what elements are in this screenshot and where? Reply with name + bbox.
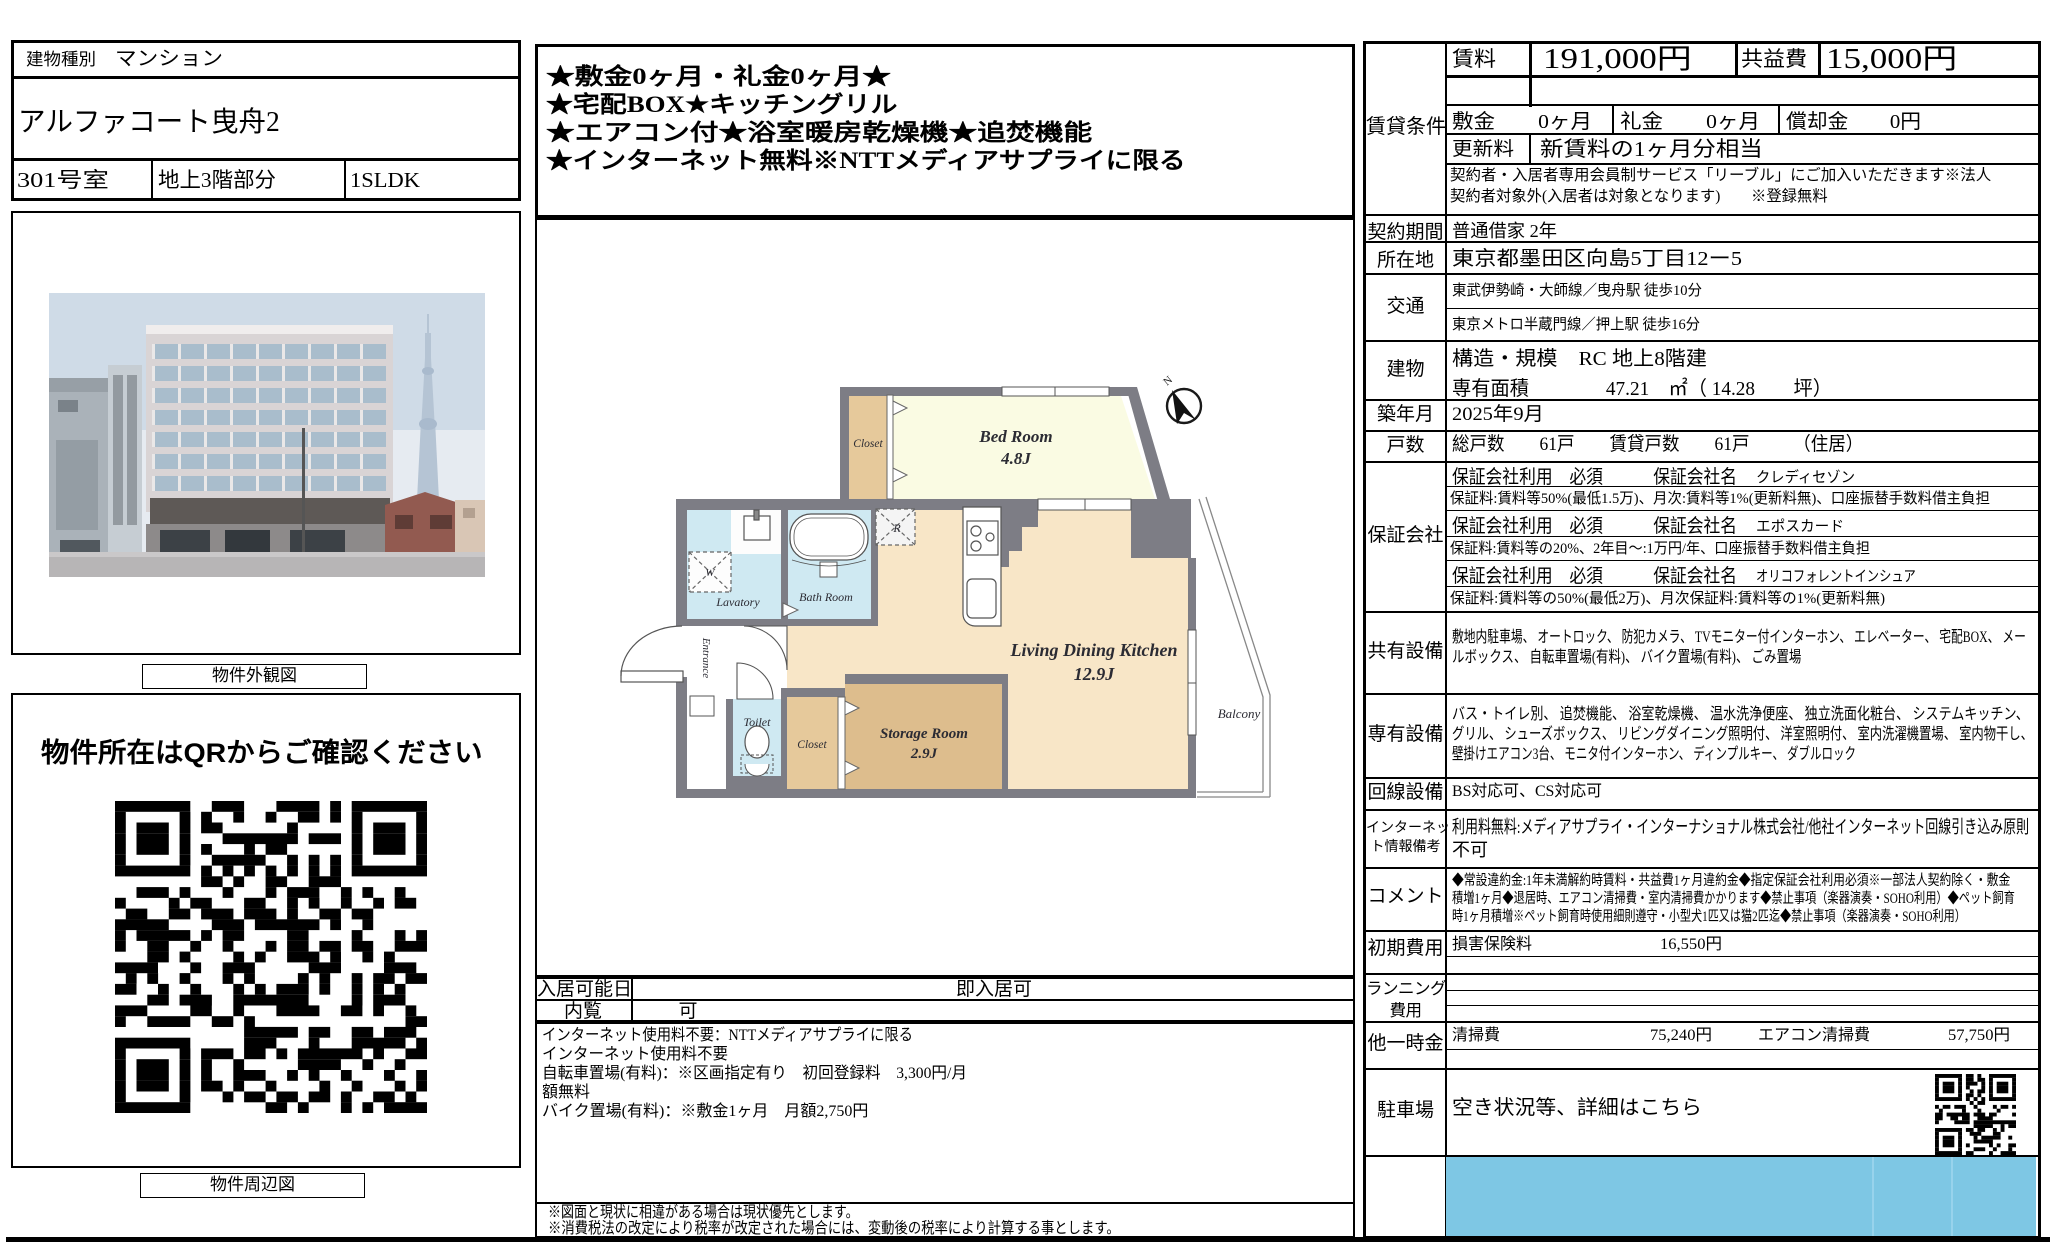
svg-text:W: W bbox=[705, 567, 715, 579]
svg-text:2.9J: 2.9J bbox=[910, 746, 938, 762]
svg-text:Closet: Closet bbox=[853, 438, 883, 450]
svg-text:Entrance: Entrance bbox=[700, 637, 712, 678]
svg-text:Closet: Closet bbox=[797, 739, 827, 751]
svg-text:Storage Room: Storage Room bbox=[880, 726, 968, 742]
svg-text:Bed Room: Bed Room bbox=[978, 427, 1052, 446]
svg-text:N: N bbox=[1161, 374, 1175, 388]
svg-text:4.8J: 4.8J bbox=[1000, 449, 1031, 468]
svg-text:Toilet: Toilet bbox=[744, 715, 772, 729]
svg-text:Living Dining Kitchen: Living Dining Kitchen bbox=[1009, 640, 1177, 660]
svg-text:Bath Room: Bath Room bbox=[799, 590, 853, 604]
svg-text:Lavatory: Lavatory bbox=[715, 595, 760, 609]
svg-text:Balcony: Balcony bbox=[1218, 706, 1261, 721]
svg-text:R: R bbox=[892, 521, 901, 535]
svg-text:12.9J: 12.9J bbox=[1074, 664, 1116, 684]
